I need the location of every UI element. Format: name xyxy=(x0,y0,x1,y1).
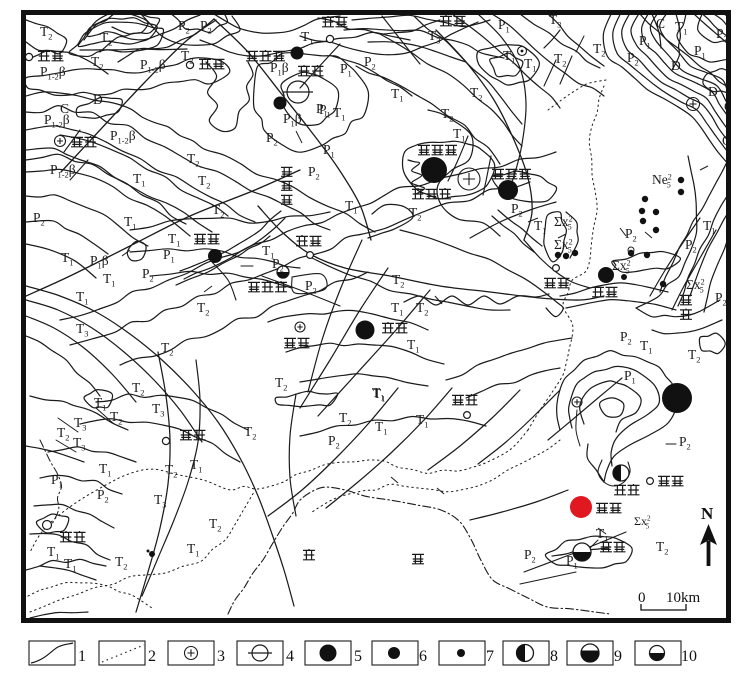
svg-text:Σx25: Σx25 xyxy=(554,214,573,232)
svg-text:5: 5 xyxy=(354,648,362,665)
svg-text:D: D xyxy=(671,58,681,73)
svg-text:Ne25: Ne25 xyxy=(652,172,672,190)
svg-text:1: 1 xyxy=(78,648,86,665)
svg-text:D: D xyxy=(93,92,103,107)
svg-text:7: 7 xyxy=(486,648,494,665)
svg-text:0: 0 xyxy=(638,590,646,606)
svg-text:Σx25: Σx25 xyxy=(554,237,573,255)
svg-text:Σx25: Σx25 xyxy=(612,258,631,276)
svg-text:6: 6 xyxy=(419,648,427,665)
svg-text:9: 9 xyxy=(614,648,622,665)
svg-text:Σx25: Σx25 xyxy=(686,277,705,295)
svg-text:3: 3 xyxy=(217,648,225,665)
svg-text:D: D xyxy=(708,84,718,99)
svg-text:2: 2 xyxy=(148,648,156,665)
svg-text:C: C xyxy=(656,16,665,31)
svg-text:10: 10 xyxy=(681,648,697,665)
svg-text:10km: 10km xyxy=(666,590,701,606)
svg-text:N: N xyxy=(701,504,714,523)
svg-text:4: 4 xyxy=(286,648,294,665)
svg-text:8: 8 xyxy=(550,648,558,665)
